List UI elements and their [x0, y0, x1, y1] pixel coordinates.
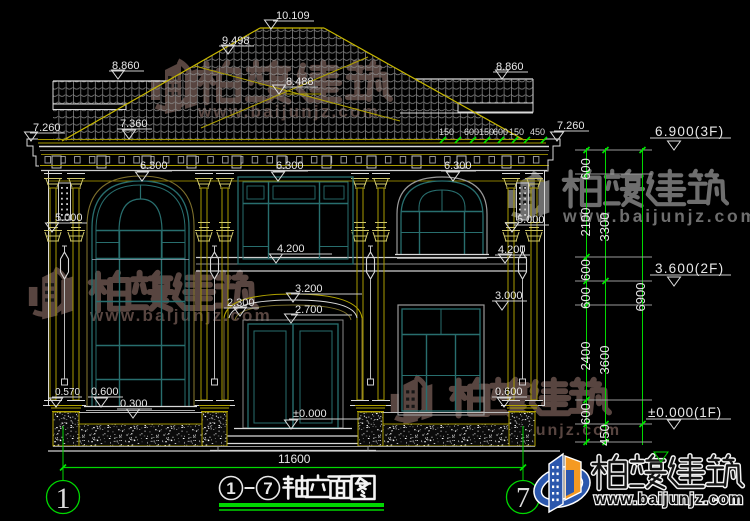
- svg-text:7: 7: [263, 479, 272, 498]
- svg-text:6.300: 6.300: [140, 160, 168, 172]
- svg-text:600: 600: [578, 287, 593, 309]
- svg-text:150: 150: [439, 127, 454, 137]
- svg-text:3.000: 3.000: [495, 290, 523, 302]
- svg-text:7.360: 7.360: [120, 118, 148, 130]
- svg-text:4.200: 4.200: [277, 243, 305, 255]
- svg-text:3.600(2F): 3.600(2F): [655, 261, 724, 276]
- svg-text:600: 600: [578, 259, 593, 281]
- svg-text:150: 150: [509, 127, 524, 137]
- svg-text:2.700: 2.700: [295, 304, 323, 316]
- svg-text:6900: 6900: [633, 283, 648, 312]
- svg-text:5.000: 5.000: [55, 212, 83, 224]
- svg-text:3300: 3300: [597, 213, 612, 242]
- svg-text:7: 7: [516, 483, 530, 514]
- svg-text:1: 1: [226, 479, 235, 498]
- svg-text:6.300: 6.300: [276, 160, 304, 172]
- svg-text:±0.000: ±0.000: [293, 408, 327, 420]
- svg-text:0.600: 0.600: [495, 386, 523, 398]
- svg-text:8.488: 8.488: [286, 76, 314, 88]
- svg-text:www.baijunjz.com: www.baijunjz.com: [593, 491, 744, 508]
- svg-text:0.300: 0.300: [120, 398, 148, 410]
- svg-text:1: 1: [56, 482, 71, 515]
- svg-text:2100: 2100: [578, 208, 593, 237]
- svg-text:600: 600: [464, 127, 479, 137]
- svg-text:0.600: 0.600: [91, 386, 119, 398]
- svg-text:8.860: 8.860: [496, 61, 524, 73]
- svg-text:11600: 11600: [278, 452, 311, 466]
- svg-text:10.109: 10.109: [276, 10, 310, 22]
- svg-text:7.260: 7.260: [557, 120, 585, 132]
- svg-text:3600: 3600: [597, 346, 612, 375]
- svg-text:6.900(3F): 6.900(3F): [655, 124, 724, 139]
- svg-text:5.000: 5.000: [517, 214, 545, 226]
- svg-text:600: 600: [493, 127, 508, 137]
- svg-text:600: 600: [578, 403, 593, 425]
- svg-text:450: 450: [530, 127, 545, 137]
- svg-text:2400: 2400: [578, 342, 593, 371]
- svg-text:150: 150: [479, 127, 494, 137]
- svg-text:0.570: 0.570: [55, 387, 80, 398]
- svg-text:6.300: 6.300: [444, 160, 472, 172]
- svg-text:600: 600: [578, 158, 593, 180]
- svg-text:±0.000(1F): ±0.000(1F): [648, 405, 722, 420]
- svg-text:450: 450: [597, 424, 612, 446]
